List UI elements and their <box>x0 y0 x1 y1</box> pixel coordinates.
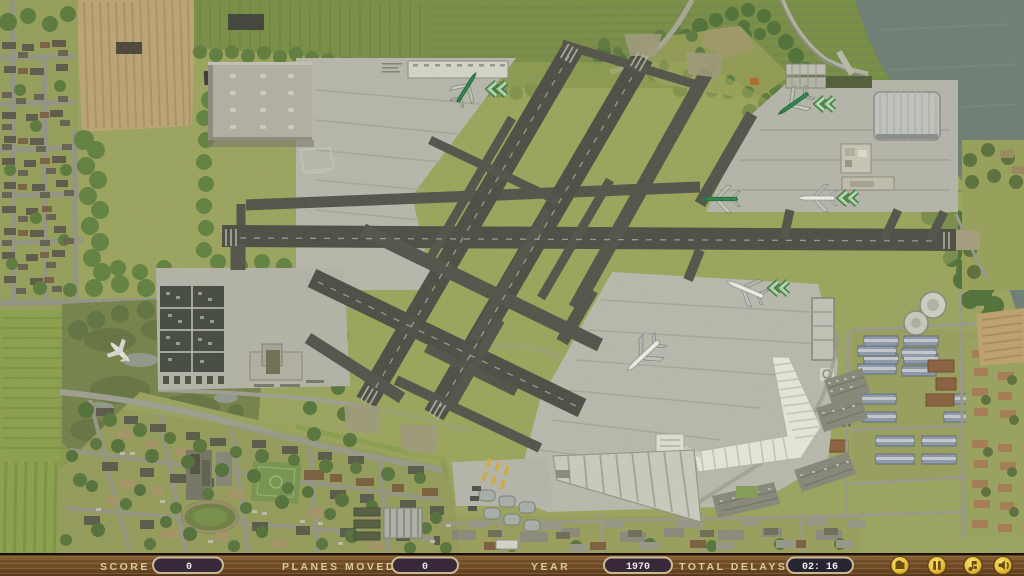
svg-text:0: 0 <box>186 562 192 573</box>
svg-text:TOTAL DELAYS: TOTAL DELAYS <box>679 561 787 573</box>
svg-text:0: 0 <box>422 562 428 573</box>
svg-text:YEAR: YEAR <box>531 561 570 573</box>
svg-text:02: 16: 02: 16 <box>802 562 838 573</box>
svg-text:PLANES MOVED: PLANES MOVED <box>282 561 396 573</box>
svg-text:SCORE: SCORE <box>100 561 150 573</box>
svg-text:1970: 1970 <box>626 562 650 573</box>
